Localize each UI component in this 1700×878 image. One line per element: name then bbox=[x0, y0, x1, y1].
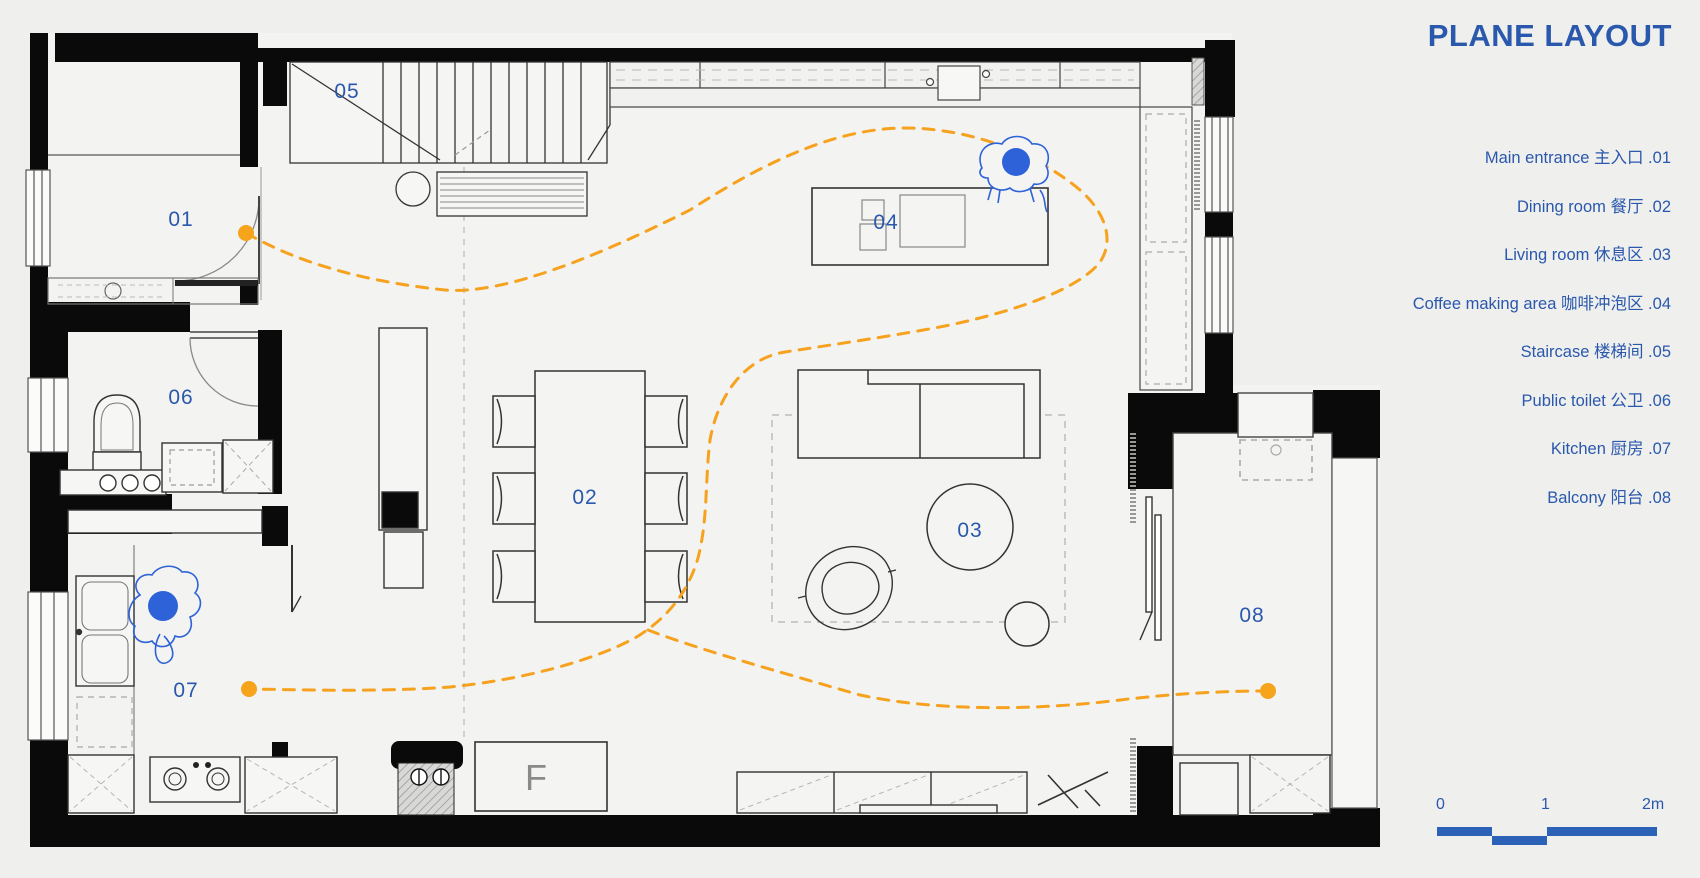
top-counter bbox=[610, 62, 1140, 107]
soundbar bbox=[860, 805, 997, 813]
room-label-03: 03 bbox=[957, 519, 982, 542]
legend-item-main-entrance: Main entrance 主入口 .01 bbox=[1413, 132, 1671, 181]
room-label-01: 01 bbox=[168, 208, 193, 231]
person-head bbox=[148, 591, 178, 621]
hatched-wall-strip bbox=[1192, 58, 1204, 105]
room-label-08: 08 bbox=[1239, 604, 1264, 627]
scale-tick-1: 1 bbox=[1541, 796, 1550, 814]
room-label-07: 07 bbox=[173, 679, 198, 702]
outer-ledge bbox=[1332, 458, 1377, 808]
staircase bbox=[290, 62, 610, 163]
scale-tick-0: 0 bbox=[1436, 796, 1445, 814]
room-label-06: 06 bbox=[168, 386, 193, 409]
scale-bar: 0 1 2m bbox=[1430, 796, 1670, 851]
path-dot-entrance bbox=[238, 225, 254, 241]
kitchen-sink bbox=[76, 576, 134, 686]
fridge-label: F bbox=[525, 757, 547, 798]
scale-segment-3 bbox=[1547, 827, 1657, 836]
coffee-machine bbox=[900, 195, 965, 247]
tall-cabinet bbox=[379, 328, 427, 588]
scale-segment-2 bbox=[1492, 836, 1547, 845]
room-label-02: 02 bbox=[572, 486, 597, 509]
room-label-05: 05 bbox=[334, 80, 359, 103]
legend-item-living-room: Living room 休息区 .03 bbox=[1413, 229, 1671, 278]
kitchen-north-counter bbox=[68, 510, 262, 533]
toilet-fixture bbox=[93, 395, 141, 472]
sofa bbox=[798, 370, 1040, 458]
legend-item-staircase: Staircase 楼梯间 .05 bbox=[1413, 326, 1671, 375]
legend-item-coffee-area: Coffee making area 咖啡冲泡区 .04 bbox=[1413, 278, 1671, 327]
legend-item-dining-room: Dining room 餐厅 .02 bbox=[1413, 181, 1671, 230]
balcony-cabinet bbox=[1180, 763, 1238, 815]
stove bbox=[150, 757, 240, 802]
shower-box bbox=[223, 440, 273, 493]
side-stool bbox=[1005, 602, 1049, 646]
room-label-04: 04 bbox=[873, 211, 898, 234]
legend-item-kitchen: Kitchen 厨房 .07 bbox=[1413, 423, 1671, 472]
path-dot-kitchen bbox=[241, 681, 257, 697]
counter-sink bbox=[938, 66, 980, 100]
page-title: PLANE LAYOUT bbox=[1428, 18, 1672, 54]
person-head bbox=[1002, 148, 1030, 176]
round-stool bbox=[396, 172, 430, 206]
path-dot-balcony bbox=[1260, 683, 1276, 699]
washing-machine bbox=[162, 443, 222, 492]
right-cabinet-column bbox=[1140, 107, 1197, 390]
legend-item-public-toilet: Public toilet 公卫 .06 bbox=[1413, 375, 1671, 424]
plane-layout-page: F bbox=[0, 0, 1700, 878]
legend: Main entrance 主入口 .01 Dining room 餐厅 .02… bbox=[1413, 132, 1671, 520]
scale-tick-2: 2m bbox=[1642, 796, 1664, 814]
coffee-bar bbox=[812, 188, 1048, 265]
scale-segment-1 bbox=[1437, 827, 1492, 836]
fridge: F bbox=[475, 742, 607, 811]
service-pillar bbox=[391, 741, 463, 815]
legend-item-balcony: Balcony 阳台 .08 bbox=[1413, 472, 1671, 521]
threshold bbox=[175, 280, 258, 286]
balcony-x-box bbox=[1250, 755, 1330, 813]
